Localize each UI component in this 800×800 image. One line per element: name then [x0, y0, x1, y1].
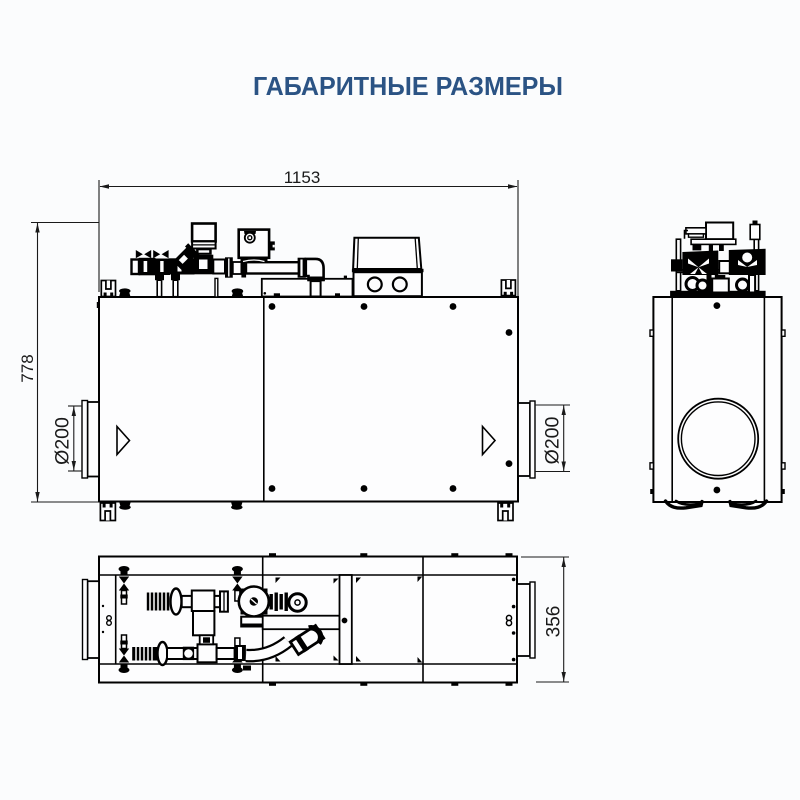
svg-text:Ø200: Ø200: [52, 417, 74, 465]
svg-text:778: 778: [18, 354, 37, 382]
svg-text:356: 356: [544, 606, 565, 638]
svg-text:ГАБАРИТНЫЕ РАЗМЕРЫ: ГАБАРИТНЫЕ РАЗМЕРЫ: [253, 71, 563, 101]
svg-text:Ø200: Ø200: [542, 416, 564, 464]
svg-text:1153: 1153: [284, 168, 321, 187]
